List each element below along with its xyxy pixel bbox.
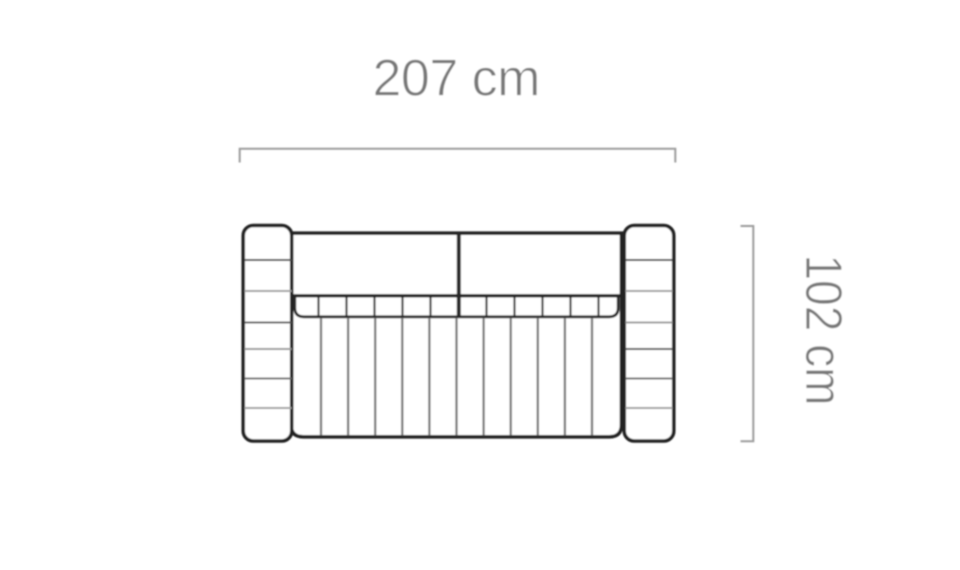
svg-text:207 cm: 207 cm xyxy=(373,49,541,107)
svg-text:102 cm: 102 cm xyxy=(794,255,852,406)
